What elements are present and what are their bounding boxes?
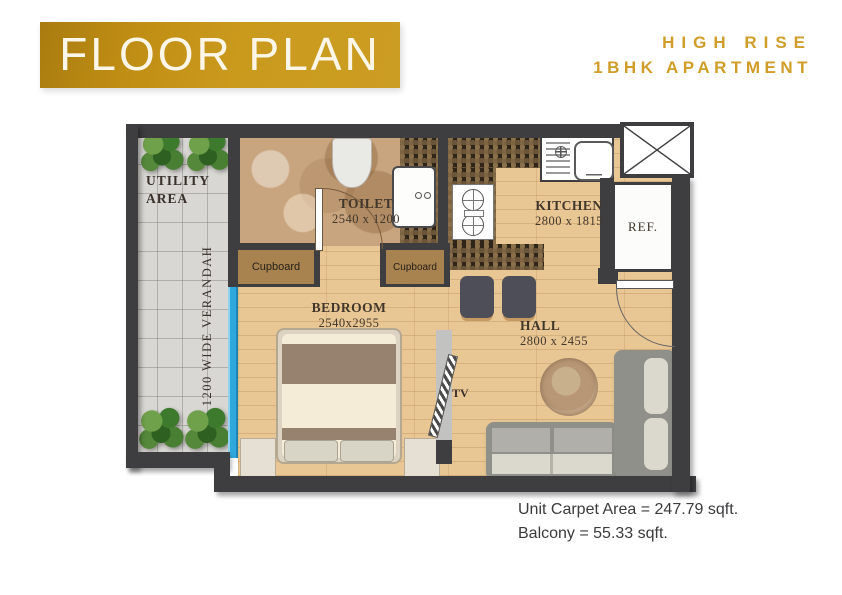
bedroom-window-strip [228,280,238,458]
nightstand [404,438,440,478]
utility-area-label: UTILITY AREA [146,172,236,208]
project-subtitle: HIGH RISE 1BHK APARTMENT [593,30,812,80]
toilet-wc-icon [332,138,372,188]
pillow [284,440,338,462]
bedroom-label: BEDROOM 2540x2955 [282,300,416,331]
sofa-seat-cushions [492,454,612,474]
room-name: KITCHEN [502,198,636,214]
sofa-cushion [644,358,668,414]
room-dims: 2800 x 1815 [502,214,636,229]
cupboard-right: Cupboard [384,248,446,286]
sink-basin [574,141,614,181]
pillow [340,440,394,462]
bar-stool [502,276,536,318]
round-rug [540,358,598,416]
cupboard-label: Cupboard [252,261,300,273]
sofa-vertical [614,350,676,478]
faucet-icon [555,146,567,158]
kitchen-counter-top [448,136,540,168]
title-banner: FLOOR PLAN [40,22,400,88]
room-dims: 2540x2955 [282,316,416,331]
page-title: FLOOR PLAN [40,22,400,86]
wall-toilet-kitchen [438,124,448,248]
wall-bottom [214,476,696,492]
wall-left [126,124,138,468]
bed-band [282,428,396,440]
hall-label: HALL 2800 x 2455 [520,318,640,349]
sofa-cushion [644,418,668,470]
room-name: HALL [520,318,640,334]
sofa-back-cushions [492,428,612,452]
cupboard-left: Cupboard [236,248,316,286]
burner-icon [462,189,484,211]
sink-icon [540,136,614,182]
tv-label: TV [452,386,482,401]
unit-type: 1BHK APARTMENT [593,55,812,80]
plant-icon [138,406,184,456]
floor-plan-page: FLOOR PLAN HIGH RISE 1BHK APARTMENT [0,0,842,595]
area-statement: Unit Carpet Area = 247.79 sqft. Balcony … [518,498,738,545]
room-dims: 2800 x 2455 [520,334,640,349]
stove-icon [452,184,494,240]
kitchen-label: KITCHEN 2800 x 1815 [502,198,636,229]
room-dims: 2540 x 1200 [300,212,432,227]
tv-wall-cap [436,440,452,464]
duct-shaft-icon [620,122,694,178]
nightstand [240,438,276,478]
bed-blanket [282,344,396,384]
building-name: HIGH RISE [593,30,812,55]
sofa-horizontal [486,422,618,480]
wall-verandah-bottom [126,452,228,468]
balcony-area-text: Balcony = 55.33 sqft. [518,522,738,546]
bar-stool [460,276,494,318]
verandah-label: 1200 WIDE VERANDAH [200,236,216,416]
bed [276,328,402,464]
burner-icon [462,214,484,236]
cupboard-label: Cupboard [393,262,437,273]
carpet-area-text: Unit Carpet Area = 247.79 sqft. [518,498,738,522]
kitchen-counter-jut [448,244,544,270]
wall-top [126,124,626,138]
toilet-label: TOILET 2540 x 1200 [300,196,432,227]
room-name: BEDROOM [282,300,416,316]
stove-knob [464,210,484,217]
room-name: TOILET [300,196,432,212]
